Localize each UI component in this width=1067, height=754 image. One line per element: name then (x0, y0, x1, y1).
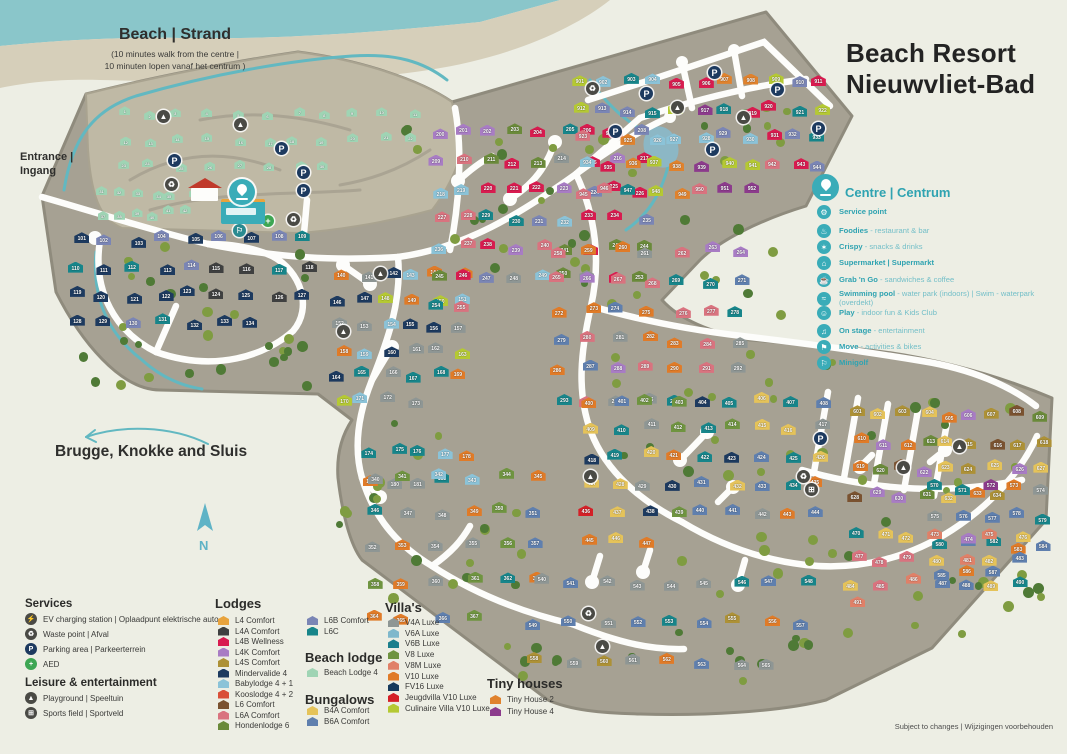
house-type-swatch (490, 707, 501, 716)
house-type-swatch (388, 661, 399, 670)
beach-subtitle: (10 minutes walk from the centre |10 min… (45, 48, 305, 72)
playground-icon: ▲ (374, 267, 387, 280)
centre-legend-item-label: Minigolf (839, 359, 1059, 368)
playground-icon: ▲ (25, 692, 37, 704)
centre-legend-item: ⌂Supermarket | Supermarkt (817, 256, 1059, 270)
house-type-swatch (307, 627, 318, 636)
waste-point-icon: ♻ (582, 607, 595, 620)
beach-lodge-heading: Beach lodge (305, 650, 382, 665)
legend-item: L6C (307, 627, 339, 636)
legend-item: Beach Lodge 4 (307, 668, 378, 677)
legend-item: ▲Playground | Speeltuin (25, 692, 123, 704)
legend-item-label: V4A Luxe (405, 618, 439, 627)
legend-item: L4S Comfort (218, 658, 280, 667)
legend-item-label: L4 Comfort (235, 616, 275, 625)
legend-item-label: L6C (324, 627, 339, 636)
legend-item: L4B Wellness (218, 637, 284, 646)
house-type-swatch (490, 695, 501, 704)
legend-item: L6B Comfort (307, 616, 369, 625)
house-type-swatch (218, 700, 229, 709)
house-type-swatch (218, 690, 229, 699)
ev-charging-icon: ⚡ (25, 613, 37, 625)
legend-item-label: Culinaire Villa V10 Luxe (405, 704, 490, 713)
legend-item-label: L6 Comfort (235, 700, 275, 709)
legend-item-label: B6A Comfort (324, 717, 369, 726)
parking-icon: P (771, 83, 784, 96)
legend-item: V10 Luxe (388, 672, 439, 681)
house-type-swatch (388, 672, 399, 681)
legend-item-label: Tiny House 4 (507, 707, 554, 716)
legend-item-label: Beach Lodge 4 (324, 668, 378, 677)
legend-item-label: V6B Luxe (405, 639, 440, 648)
house-type-swatch (388, 650, 399, 659)
move-icon: ⚑ (817, 340, 831, 354)
legend-item-label: Tiny House 2 (507, 695, 554, 704)
legend-item-label: B4A Comfort (324, 706, 369, 715)
legend-item: L6 Comfort (218, 700, 275, 709)
compass-letter: N (199, 538, 208, 553)
legend-item-label: FV16 Luxe (405, 682, 444, 691)
centre-legend-item: ♨Foodies - restaurant & bar (817, 224, 1059, 238)
parking-icon: P (25, 643, 37, 655)
legend-item-label: Hondenlodge 6 (235, 721, 289, 730)
playground-icon: ▲ (596, 640, 609, 653)
parking-icon: P (168, 154, 181, 167)
legend-item: Hondenlodge 6 (218, 721, 289, 730)
centre-legend-item: ≈Swimming pool - water park (indoors) | … (817, 290, 1059, 307)
centre-legend-item-label: On stage - entertainment (839, 327, 1059, 336)
legend-item-label: V8 Luxe (405, 650, 434, 659)
page-title: Beach ResortNieuwvliet-Bad (846, 38, 1035, 100)
services-heading: Services (25, 598, 72, 610)
centre-legend-item: ⚙Service point (817, 205, 1059, 219)
playground-icon: ▲ (953, 440, 966, 453)
parking-icon: P (706, 143, 719, 156)
tiny-houses-heading: Tiny houses (487, 676, 563, 691)
waste-point-icon: ♻ (165, 178, 178, 191)
legend-item-label: Mindervalide 4 (235, 669, 287, 678)
centre-legend-item: ♫On stage - entertainment (817, 324, 1059, 338)
legend-item-label: Parking area | Parkeerterrein (43, 645, 146, 654)
house-type-swatch (218, 711, 229, 720)
centre-legend-item-label: Supermarket | Supermarkt (839, 259, 1059, 268)
legend-item: FV16 Luxe (388, 682, 444, 691)
centre-legend-pin-icon (812, 174, 839, 201)
supermarket-icon: ⌂ (817, 256, 831, 270)
house-type-swatch (388, 639, 399, 648)
centre-legend-item: ⚑Move - activities & bikes (817, 340, 1059, 354)
waste-point-icon: ♻ (287, 213, 300, 226)
sports-field-icon: ⊞ (25, 707, 37, 719)
centre-legend-item: ☺Play - indoor fun & Kids Club (817, 306, 1059, 320)
house-type-swatch (218, 616, 229, 625)
entrance-label: Entrance |Ingang (20, 150, 73, 178)
minigolf-icon: ⚐ (817, 356, 831, 370)
centre-legend-item: ☕Grab 'n Go - sandwiches & coffee (817, 273, 1059, 287)
legend-item-label: L6B Comfort (324, 616, 369, 625)
minigolf-icon: ⚐ (233, 224, 246, 237)
legend-item-label: Kooslodge 4 + 2 (235, 690, 293, 699)
house-type-swatch (218, 637, 229, 646)
legend-item: Culinaire Villa V10 Luxe (388, 704, 490, 713)
legend-item-label: V6A Luxe (405, 629, 439, 638)
bungalows-heading: Bungalows (305, 692, 374, 707)
house-type-swatch (218, 721, 229, 730)
house-type-swatch (218, 658, 229, 667)
crispy-icon: ✶ (817, 240, 831, 254)
resort-map-page: 1234567891011121314151617181920212223242… (0, 0, 1067, 754)
house-type-swatch (388, 629, 399, 638)
footnote: Subject to changes | Wijzigingen voorbeh… (895, 722, 1053, 731)
legend-item: Kooslodge 4 + 2 (218, 690, 293, 699)
parking-icon: P (812, 122, 825, 135)
playground-icon: ▲ (234, 118, 247, 131)
house-type-swatch (218, 627, 229, 636)
legend-item-label: L4A Comfort (235, 627, 279, 636)
legend-item: V6B Luxe (388, 639, 440, 648)
centre-legend-item-label: Crispy - snacks & drinks (839, 243, 1059, 252)
legend-item: ⚡EV charging station | Oplaadpunt elektr… (25, 613, 219, 625)
parking-icon: P (275, 142, 288, 155)
legend-item: V6A Luxe (388, 629, 439, 638)
legend-item: +AED (25, 658, 59, 670)
playground-icon: ▲ (584, 470, 597, 483)
legend-item-label: L4K Comfort (235, 648, 280, 657)
legend-item: Mindervalide 4 (218, 669, 287, 678)
direction-label: Brugge, Knokke and Sluis (55, 443, 247, 461)
legend-item: V4A Luxe (388, 618, 439, 627)
legend-item-label: L6A Comfort (235, 711, 279, 720)
centre-legend-item-label: Swimming pool - water park (indoors) | S… (839, 290, 1059, 307)
house-type-swatch (307, 706, 318, 715)
house-type-swatch (307, 717, 318, 726)
sports-field-icon: ⊞ (805, 483, 818, 496)
centre-legend-item-label: Grab 'n Go - sandwiches & coffee (839, 276, 1059, 285)
legend-item-label: AED (43, 660, 59, 669)
swimming-pool-icon: ≈ (817, 292, 831, 306)
legend-item: Tiny House 2 (490, 695, 554, 704)
grab-n-go-icon: ☕ (817, 273, 831, 287)
centre-legend-heading: Centre | Centrum (845, 185, 951, 200)
legend-item: Babylodge 4 + 1 (218, 679, 293, 688)
legend-item: B6A Comfort (307, 717, 369, 726)
centre-legend-item-label: Service point (839, 208, 1059, 217)
house-type-swatch (307, 668, 318, 677)
legend-item: PParking area | Parkeerterrein (25, 643, 146, 655)
legend-item-label: L4B Wellness (235, 637, 284, 646)
playground-icon: ▲ (897, 461, 910, 474)
parking-icon: P (708, 66, 721, 79)
house-type-swatch (218, 679, 229, 688)
centre-pin-icon (229, 179, 255, 205)
house-type-swatch (218, 648, 229, 657)
parking-icon: P (609, 125, 622, 138)
parking-icon: P (814, 432, 827, 445)
centre-legend-item-label: Foodies - restaurant & bar (839, 227, 1059, 236)
legend-item-label: Babylodge 4 + 1 (235, 679, 293, 688)
legend-item: Tiny House 4 (490, 707, 554, 716)
playground-icon: ▲ (737, 111, 750, 124)
legend-item-label: Playground | Speeltuin (43, 694, 123, 703)
legend-item: ⊞Sports field | Sportveld (25, 707, 123, 719)
legend-item: ♻Waste point | Afval (25, 628, 109, 640)
legend-item: L4 Comfort (218, 616, 275, 625)
parking-icon: P (640, 87, 653, 100)
on-stage-icon: ♫ (817, 324, 831, 338)
legend-item-label: V8M Luxe (405, 661, 441, 670)
centre-legend-item: ✶Crispy - snacks & drinks (817, 240, 1059, 254)
legend-item: L4A Comfort (218, 627, 279, 636)
play-icon: ☺ (817, 306, 831, 320)
legend-item: L4K Comfort (218, 648, 280, 657)
house-type-swatch (388, 693, 399, 702)
reception-building (191, 188, 218, 201)
legend-item: V8M Luxe (388, 661, 441, 670)
centre-legend-item-label: Move - activities & bikes (839, 343, 1059, 352)
playground-icon: ▲ (157, 110, 170, 123)
legend-item-label: V10 Luxe (405, 672, 439, 681)
house-type-swatch (218, 669, 229, 678)
waste-point-icon: ♻ (25, 628, 37, 640)
leisure-heading: Leisure & entertainment (25, 677, 157, 689)
parking-icon: P (297, 184, 310, 197)
legend-item-label: L4S Comfort (235, 658, 280, 667)
legend-item: V8 Luxe (388, 650, 434, 659)
waste-point-icon: ♻ (586, 82, 599, 95)
legend-item-label: EV charging station | Oplaadpunt elektri… (43, 615, 219, 624)
parking-icon: P (297, 166, 310, 179)
legend-item-label: Waste point | Afval (43, 630, 109, 639)
legend-item: B4A Comfort (307, 706, 369, 715)
service-point-icon: ⚙ (817, 205, 831, 219)
beach-heading: Beach | Strand (60, 26, 290, 44)
foodies-icon: ♨ (817, 224, 831, 238)
playground-icon: ▲ (337, 325, 350, 338)
legend-item: Jeugdvilla V10 Luxe (388, 693, 477, 702)
legend-item-label: Jeugdvilla V10 Luxe (405, 693, 477, 702)
house-type-swatch (388, 682, 399, 691)
aed-icon: + (25, 658, 37, 670)
map-icons-layer: PPPPPPPPPPP♻♻♻♻♻▲▲▲▲▲▲▲▲▲▲⊞+⚐ (0, 0, 1067, 754)
house-type-swatch (388, 704, 399, 713)
playground-icon: ▲ (671, 101, 684, 114)
villas-heading: Villa's (385, 600, 422, 615)
centre-legend-item: ⚐Minigolf (817, 356, 1059, 370)
legend-item: L6A Comfort (218, 711, 279, 720)
house-type-swatch (307, 616, 318, 625)
legend-item-label: Sports field | Sportveld (43, 709, 123, 718)
waste-point-icon: ♻ (797, 470, 810, 483)
centre-legend-item-label: Play - indoor fun & Kids Club (839, 309, 1059, 318)
house-type-swatch (388, 618, 399, 627)
lodges-heading: Lodges (215, 596, 261, 611)
